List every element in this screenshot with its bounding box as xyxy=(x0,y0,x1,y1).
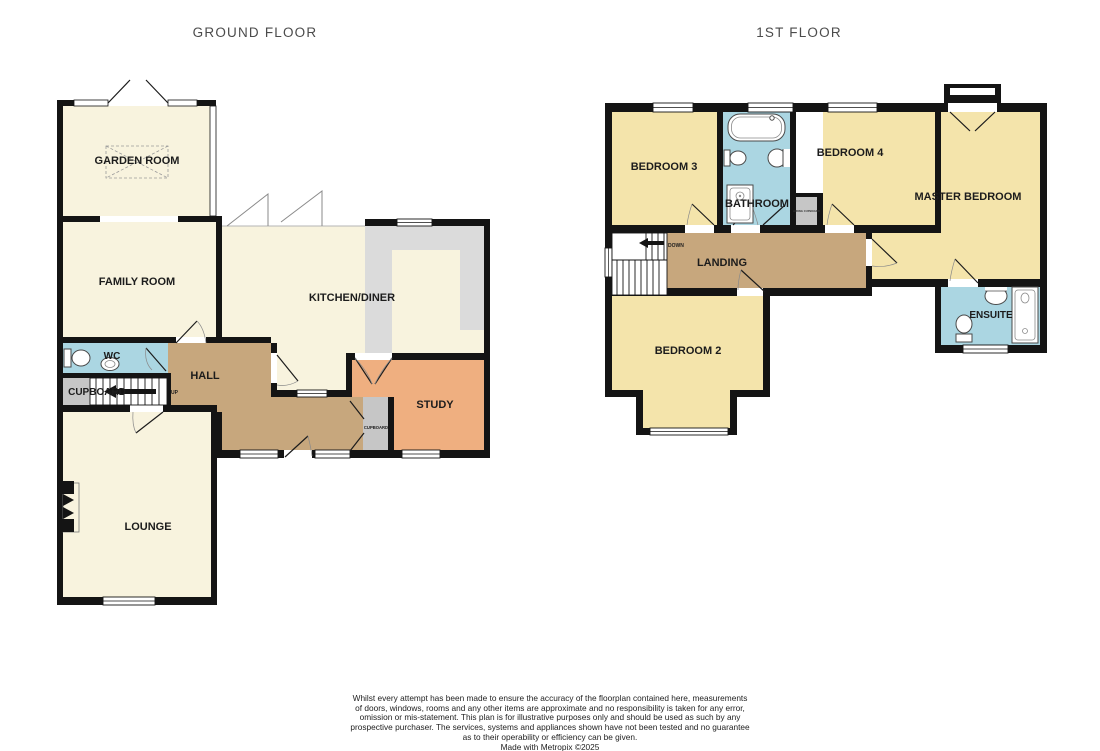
study-label: STUDY xyxy=(416,399,454,411)
shower-icon xyxy=(1012,287,1038,343)
floorplan-drawing: GROUND FLOOR xyxy=(0,0,1100,751)
master-bedroom-label: MASTER BEDROOM xyxy=(915,191,1022,203)
window xyxy=(748,103,793,112)
window xyxy=(402,450,440,458)
down-arrow-icon xyxy=(648,241,664,245)
window xyxy=(963,345,1008,353)
garden-room-label: GARDEN ROOM xyxy=(95,155,180,167)
first-floor-rooms xyxy=(612,112,1040,428)
room-bedroom-4 xyxy=(823,112,935,225)
window xyxy=(397,219,432,226)
wc-label: WC xyxy=(104,351,121,362)
kitchen-diner-label: KITCHEN/DINER xyxy=(309,292,395,304)
cupboard-small-label: CUPBOARD xyxy=(364,425,388,430)
sink-icon xyxy=(985,287,1007,305)
landing-label: LANDING xyxy=(697,257,747,269)
window xyxy=(653,103,693,112)
window xyxy=(297,390,327,397)
window xyxy=(240,450,278,458)
bedroom3-label: BEDROOM 3 xyxy=(631,161,698,173)
bathroom-label: BATHROOM xyxy=(725,198,789,210)
bedroom2-label: BEDROOM 2 xyxy=(655,345,722,357)
disclaimer: Whilst every attempt has been made to en… xyxy=(300,694,800,751)
family-room-label: FAMILY ROOM xyxy=(99,276,175,288)
french-doors xyxy=(108,80,168,103)
toilet-icon xyxy=(724,150,746,166)
sink-icon xyxy=(768,149,790,167)
bedroom4-label: BEDROOM 4 xyxy=(817,147,885,159)
room-bedroom-2 xyxy=(612,296,763,428)
window xyxy=(650,428,728,435)
first-floor: 1ST FLOOR xyxy=(605,25,1047,435)
room-cupboard-small xyxy=(363,397,388,450)
window xyxy=(828,103,877,112)
first-floor-title: 1ST FLOOR xyxy=(756,25,842,40)
bathtub-icon xyxy=(728,114,785,141)
window xyxy=(103,597,155,605)
lounge-label: LOUNGE xyxy=(124,521,171,533)
stairs-up-label: UP xyxy=(171,390,179,396)
sloped-roof-symbol xyxy=(227,191,322,226)
ensuite-label: ENSUITE xyxy=(969,310,1013,321)
floorplan-page: GROUND FLOOR xyxy=(0,0,1100,751)
ground-floor-title: GROUND FLOOR xyxy=(193,25,318,40)
hall-label: HALL xyxy=(190,370,220,382)
metropix-credit: Made with Metropix ©2025 xyxy=(300,743,800,751)
room-lounge xyxy=(63,412,211,597)
ground-floor: GROUND FLOOR xyxy=(57,25,490,605)
cupboard-label: CUPBOARD xyxy=(68,387,126,398)
stairs-down-label: DOWN xyxy=(668,243,684,249)
window xyxy=(315,450,350,458)
window xyxy=(605,248,612,277)
airing-cupboard-label: AIRING CUPBOARD xyxy=(793,209,820,213)
toilet-icon xyxy=(64,349,90,367)
